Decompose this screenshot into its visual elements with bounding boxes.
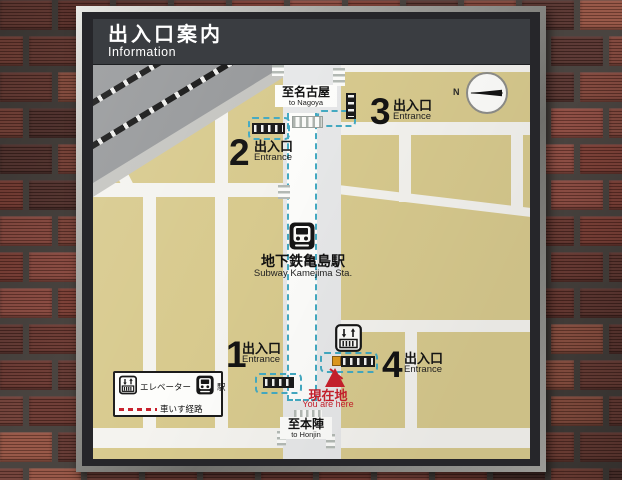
- brick: [609, 180, 622, 210]
- entrance-3-number: 3: [370, 93, 390, 130]
- brick: [580, 432, 622, 462]
- brick: [0, 360, 52, 390]
- photo-of-station-sign: 出入口案内 Information: [0, 0, 622, 480]
- brick: [0, 144, 52, 174]
- legend-elevator-label: エレベーター: [140, 381, 191, 393]
- sign-metal-frame: 出入口案内 Information: [76, 6, 546, 472]
- entrance-1-stairs-icon: [263, 377, 294, 388]
- entrance-2-number: 2: [229, 134, 249, 171]
- brick: [609, 36, 622, 66]
- brick: [0, 468, 23, 480]
- brick: [609, 468, 622, 480]
- station-name-jp: 地下鉄亀島駅: [238, 253, 368, 269]
- entrance-4-number: 4: [382, 346, 402, 383]
- brick: [580, 144, 622, 174]
- entrance-4-label-en: Entrance: [404, 365, 443, 375]
- entrance-4-stairs-icon: [341, 356, 375, 367]
- legend-row-route: 車いす経路: [119, 398, 217, 420]
- brick: [0, 72, 52, 102]
- map-legend: エレベーター 駅: [113, 371, 223, 417]
- entrance-3-stairs-icon: [346, 93, 356, 119]
- entrance-2-label-en: Entrance: [254, 153, 293, 163]
- brick: [580, 72, 622, 102]
- compass-icon: [466, 72, 508, 114]
- brick: [609, 108, 622, 138]
- station-name-en: Subway Kamejima Sta.: [238, 269, 368, 280]
- destination-nagoya-jp: 至名古屋: [277, 86, 335, 99]
- brick: [0, 324, 23, 354]
- brick: [0, 432, 52, 462]
- brick: [29, 468, 81, 480]
- brick: [0, 180, 23, 210]
- street-southeast-vertical: [405, 320, 417, 430]
- destination-nagoya-en: to Nagoya: [277, 99, 335, 107]
- brick: [580, 216, 622, 246]
- destination-honjin-en: to Honjin: [282, 431, 330, 439]
- entrance-2-label: 出入口 Entrance: [254, 140, 293, 163]
- brick: [0, 108, 23, 138]
- brick: [551, 324, 603, 354]
- entrance-1-label-en: Entrance: [242, 355, 281, 365]
- brick: [0, 36, 23, 66]
- sign-title-jp: 出入口案内: [108, 24, 530, 46]
- brick: [29, 252, 81, 282]
- brick: [0, 396, 23, 426]
- sign-title-en: Information: [108, 46, 530, 60]
- corridor-crosswalk-icon: [292, 116, 323, 128]
- station-icon: [289, 222, 315, 250]
- brick: [29, 396, 81, 426]
- entrance-3-label: 出入口 Entrance: [393, 99, 432, 122]
- brick: [29, 36, 81, 66]
- wheelchair-route-legend-line: [119, 408, 157, 411]
- elevator-position-marker: [332, 356, 341, 366]
- brick: [609, 396, 622, 426]
- brick: [551, 108, 603, 138]
- brick: [580, 360, 622, 390]
- brick: [551, 180, 603, 210]
- brick: [551, 468, 603, 480]
- brick: [0, 0, 52, 30]
- brick: [580, 288, 622, 318]
- compass-north-label: N: [453, 87, 460, 97]
- brick: [0, 288, 52, 318]
- entrance-2-stairs-icon: [252, 123, 285, 134]
- legend-wheelchair-label: 車いす経路: [160, 403, 203, 415]
- brick: [551, 36, 603, 66]
- brick: [0, 252, 23, 282]
- street-east-horizontal-upper: [338, 122, 530, 135]
- you-are-here-label-en: You are here: [293, 399, 363, 409]
- sign-header: 出入口案内 Information: [93, 19, 530, 65]
- legend-station-icon: [196, 375, 214, 400]
- railway-track-icon: [93, 65, 168, 108]
- station-area-map: 現在地 You are here 至名古屋 to Nagoya 至本陣 to H…: [93, 65, 530, 459]
- street-east-horizontal-lower: [341, 320, 530, 332]
- brick: [29, 180, 81, 210]
- sign-panel: 出入口案内 Information: [93, 19, 530, 459]
- brick: [551, 396, 603, 426]
- crosswalk-icon: [333, 68, 345, 86]
- brick: [580, 0, 622, 30]
- brick: [29, 108, 81, 138]
- destination-honjin-jp: 至本陣: [282, 418, 330, 431]
- brick: [551, 252, 603, 282]
- brick: [609, 324, 622, 354]
- street-east-vertical-1: [399, 122, 411, 202]
- brick: [0, 216, 52, 246]
- entrance-4-label: 出入口 Entrance: [404, 352, 443, 375]
- legend-elevator-icon: [119, 375, 137, 400]
- entrance-1-label: 出入口 Entrance: [242, 342, 281, 365]
- brick: [29, 324, 81, 354]
- crosswalk-icon: [278, 185, 290, 199]
- street-east-vertical-2: [511, 122, 523, 214]
- legend-row-icons: エレベーター 駅: [119, 376, 217, 398]
- crosswalk-icon: [272, 65, 284, 76]
- legend-station-label: 駅: [217, 381, 226, 393]
- elevator-icon: [335, 324, 362, 352]
- entrance-3-label-en: Entrance: [393, 112, 432, 122]
- station-name: 地下鉄亀島駅 Subway Kamejima Sta.: [238, 253, 368, 280]
- street-east-diagonal: [337, 185, 530, 217]
- destination-nagoya-label: 至名古屋 to Nagoya: [275, 85, 337, 107]
- brick: [609, 252, 622, 282]
- destination-honjin-label: 至本陣 to Honjin: [280, 417, 332, 439]
